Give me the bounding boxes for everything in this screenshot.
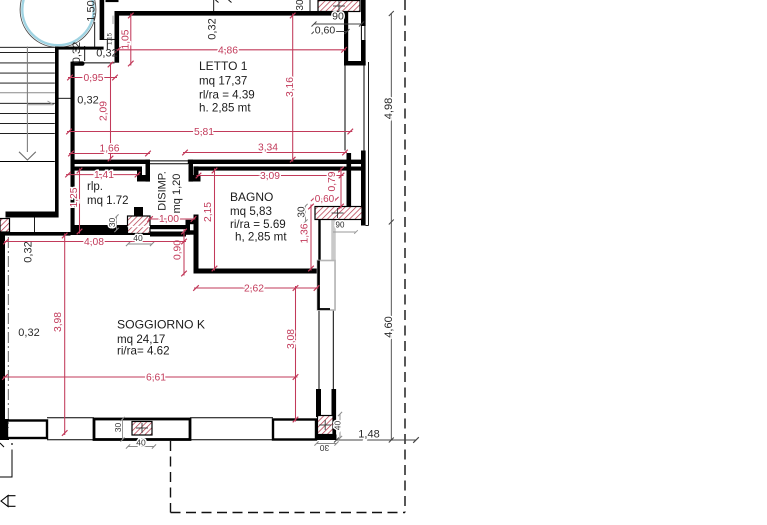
svg-text:4,86: 4,86 — [218, 45, 238, 56]
svg-text:0,79: 0,79 — [327, 171, 338, 191]
svg-text:40: 40 — [133, 233, 143, 243]
svg-text:30: 30 — [295, 0, 306, 11]
svg-text:1,00: 1,00 — [159, 214, 179, 225]
svg-text:0,60: 0,60 — [315, 194, 335, 205]
svg-text:1,66: 1,66 — [99, 144, 119, 155]
svg-text:2,15: 2,15 — [203, 202, 214, 222]
svg-text:0,90: 0,90 — [173, 240, 184, 260]
svg-text:0,32: 0,32 — [18, 327, 39, 339]
svg-text:3,98: 3,98 — [53, 312, 64, 332]
svg-text:mq 1.72: mq 1.72 — [87, 195, 129, 207]
svg-text:3,34: 3,34 — [258, 143, 278, 154]
svg-text:SOGGIORNO K: SOGGIORNO K — [117, 318, 205, 332]
svg-text:2,09: 2,09 — [99, 101, 110, 121]
svg-text:3,16: 3,16 — [285, 77, 296, 97]
svg-text:ri/ra= 4.62: ri/ra= 4.62 — [117, 345, 170, 358]
svg-text:h, 2,85 mt: h, 2,85 mt — [235, 231, 287, 244]
svg-text:BAGNO: BAGNO — [230, 190, 273, 204]
svg-text:30: 30 — [113, 423, 123, 433]
svg-text:4,98: 4,98 — [383, 98, 395, 119]
svg-text:2,62: 2,62 — [244, 284, 264, 295]
svg-text:3,08: 3,08 — [286, 329, 297, 349]
svg-text:90: 90 — [336, 221, 345, 230]
svg-text:0,32: 0,32 — [206, 18, 218, 39]
svg-text:40: 40 — [332, 421, 342, 431]
svg-text:1,48: 1,48 — [358, 429, 379, 441]
svg-text:ri/ra = 5.69: ri/ra = 5.69 — [230, 218, 286, 231]
svg-text:4,08: 4,08 — [84, 237, 104, 248]
svg-text:90: 90 — [332, 11, 344, 23]
svg-text:1,41: 1,41 — [94, 170, 114, 181]
svg-text:1,15: 1,15 — [106, 32, 113, 45]
svg-text:4,60: 4,60 — [383, 316, 395, 337]
svg-text:6,61: 6,61 — [146, 373, 166, 384]
svg-text:rlp.: rlp. — [87, 181, 103, 193]
svg-text:h. 2,85 mt: h. 2,85 mt — [199, 102, 251, 115]
svg-text:LETTO 1: LETTO 1 — [199, 59, 248, 73]
svg-text:1,05: 1,05 — [120, 29, 131, 49]
svg-text:0,32: 0,32 — [71, 42, 83, 63]
svg-text:mq 5,83: mq 5,83 — [230, 205, 272, 218]
svg-text:0,32: 0,32 — [96, 47, 117, 59]
svg-text:30: 30 — [297, 206, 308, 218]
svg-text:40: 40 — [136, 437, 146, 447]
svg-text:1,25: 1,25 — [69, 187, 80, 207]
svg-text:mq 17,37: mq 17,37 — [199, 75, 247, 88]
svg-text:mq 1,20: mq 1,20 — [171, 174, 183, 214]
svg-text:0,60: 0,60 — [315, 25, 336, 37]
svg-text:0,95: 0,95 — [83, 73, 103, 84]
svg-text:1,50: 1,50 — [85, 0, 97, 21]
svg-text:0,32: 0,32 — [77, 94, 98, 106]
svg-text:30: 30 — [320, 443, 330, 453]
svg-text:5,81: 5,81 — [194, 127, 214, 138]
svg-text:rl/ra = 4.39: rl/ra = 4.39 — [199, 89, 255, 102]
svg-text:3,09: 3,09 — [260, 171, 280, 182]
svg-text:DISIMP.: DISIMP. — [156, 171, 168, 211]
svg-text:1,36: 1,36 — [300, 223, 311, 243]
svg-text:30: 30 — [107, 218, 117, 228]
svg-text:0,32: 0,32 — [22, 241, 34, 262]
